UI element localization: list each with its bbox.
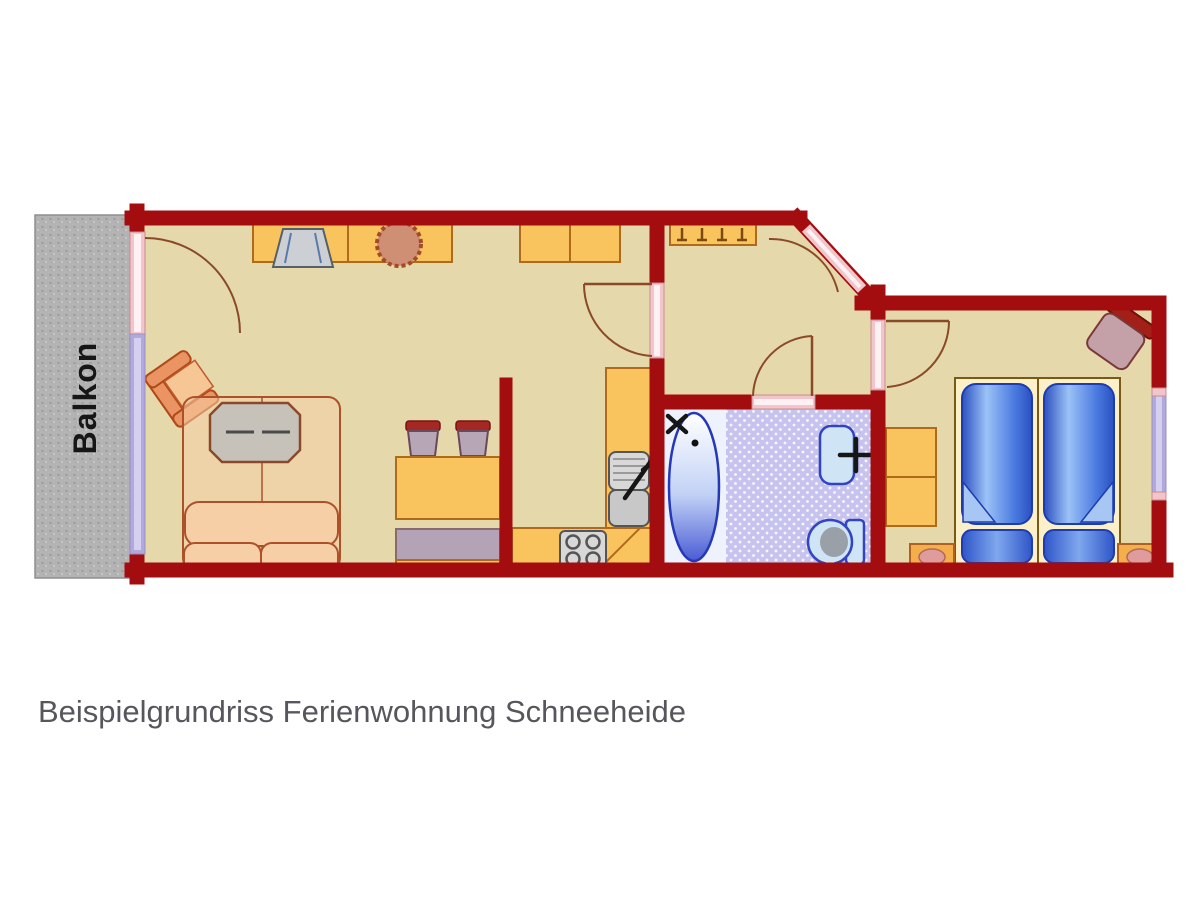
bar-shelf [396,529,500,563]
bathroom-door-opening [752,395,815,409]
sofa [183,397,340,573]
toilet-seat [820,527,848,557]
bedroom-door-opening [871,320,885,390]
toilet [808,520,864,564]
bathtub-drain [692,440,699,447]
sofa-seat [185,502,338,546]
bar-stool-right [456,421,490,456]
balcony-label: Balkon [67,342,103,455]
caption: Beispielgrundriss Ferienwohnung Schneehe… [38,694,686,730]
kitchen-door-opening [650,283,664,358]
plant [377,222,421,266]
bed-pillow-right [1044,530,1114,563]
bed-pillow-left [962,530,1032,563]
balcony: Balkon [35,215,132,578]
floor-plan: Balkon [0,0,1200,900]
page: { "caption": "Beispielgrundriss Ferienwo… [0,0,1200,900]
tv [273,229,333,267]
living-room-window [130,334,145,554]
hallway [670,224,756,245]
bathtub [669,413,719,561]
bedroom-window [1152,388,1166,500]
bar-counter [396,457,500,519]
bar-stool-left [406,421,440,456]
balcony-door [130,232,145,334]
